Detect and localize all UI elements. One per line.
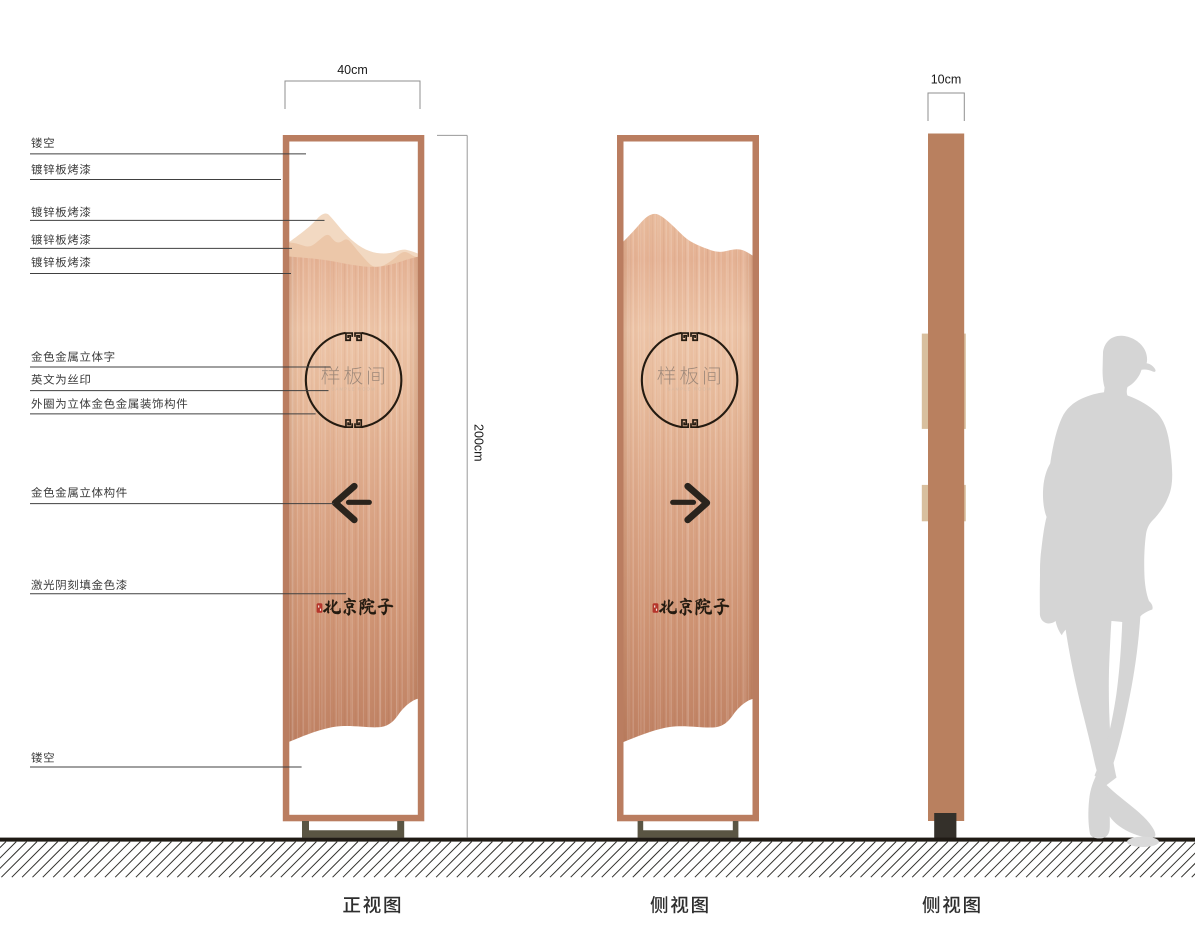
svg-text:200cm: 200cm — [472, 424, 486, 462]
svg-text:SAMPLE ROOM: SAMPLE ROOM — [332, 387, 376, 392]
svg-text:10cm: 10cm — [931, 73, 962, 87]
svg-text:40cm: 40cm — [337, 63, 368, 77]
svg-text:SAMPLE ROOM: SAMPLE ROOM — [668, 387, 712, 392]
